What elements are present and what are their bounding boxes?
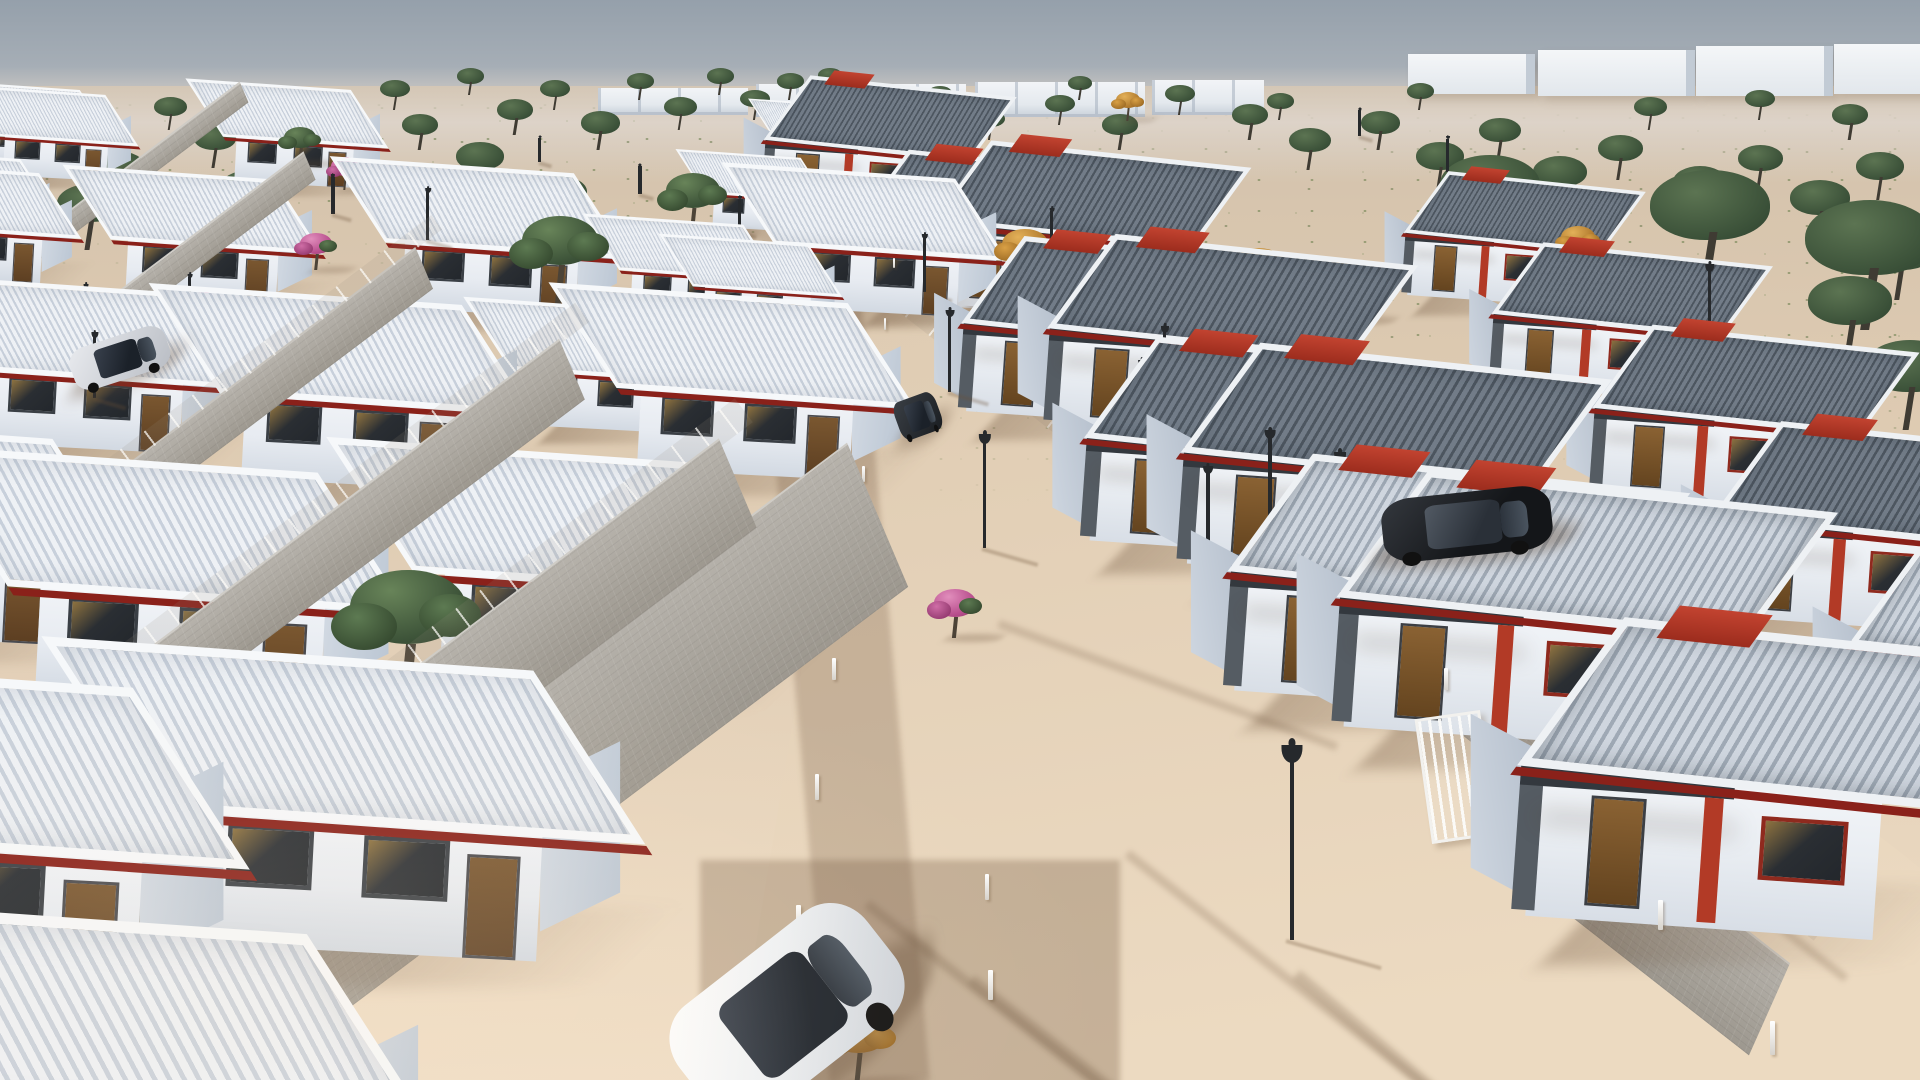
acacia-tree [402,114,438,150]
house-window [1757,816,1848,886]
lamp-finial [1288,738,1295,748]
distant-white-building [1696,46,1833,96]
acacia-tree [1479,118,1521,160]
distant-white-building [1834,44,1920,94]
red-parapet-box [1656,606,1772,648]
fence-post [985,874,989,900]
tree-trunk [718,82,722,95]
tree-canopy [1479,118,1521,142]
lamp-pole [538,138,542,162]
red-accent-pillar [1696,797,1724,923]
acacia-tree [1634,97,1667,130]
tree-canopy [319,240,337,252]
street-lamp [916,234,933,292]
acacia-tree [540,80,570,110]
street-lamp [968,434,1002,548]
red-parapet-box [1462,166,1510,183]
tree-canopy [331,603,397,650]
red-parapet-box [1284,334,1370,365]
house-right-block [1520,600,1920,934]
house-window [361,835,450,902]
house-door [1432,245,1458,292]
house-left-block [0,163,72,281]
tree-trunk [1758,106,1762,120]
tree-canopy [1856,152,1904,180]
tree-canopy [1289,128,1331,152]
lamp-pole [948,316,952,392]
bougainvillea-tree [933,587,977,638]
acacia-tree [497,99,533,135]
tree-canopy [698,185,727,205]
acacia-tree [1165,85,1195,115]
house-window [743,404,797,445]
fence-post [815,774,819,800]
tree-trunk [1647,114,1652,130]
lamp-finial [1268,427,1272,432]
tree-trunk [1307,150,1313,170]
street-lamp-small [1356,108,1364,136]
fence-post [1444,668,1448,690]
acacia-tree [1745,90,1775,120]
street-lamp-small [327,174,339,214]
acacia-tree [627,73,654,100]
lamp-finial [924,232,926,235]
tree-canopy [1130,97,1144,106]
fence-post [832,658,836,680]
street-lamp-small [636,164,645,194]
tree-canopy [1045,95,1075,112]
acacia-tree [1598,135,1643,180]
acacia-tree [457,68,484,95]
tree-trunk [417,133,422,150]
acacia-tree [1856,152,1904,200]
street-lamp [1263,745,1322,940]
acacia-tree [1267,93,1294,120]
house-window [0,235,7,260]
tree-canopy [380,80,410,97]
tree-canopy [1832,104,1868,125]
lamp-finial [1051,206,1053,208]
tree-canopy [1805,200,1920,275]
tree-trunk [1247,123,1252,140]
red-parapet-box [1008,134,1072,157]
tree-trunk [1058,111,1062,125]
lamp-finial [1206,463,1209,468]
acacia-tree [1289,128,1331,170]
tree-canopy [1232,104,1268,125]
house-door [12,242,34,282]
house-window [248,142,278,164]
lamp-finial [639,163,640,165]
acacia-tree [1832,104,1868,140]
tree-trunk [1278,107,1282,120]
tree-trunk [1178,101,1182,115]
house-door [462,853,521,959]
tree-canopy [657,189,688,211]
lamp-finial [189,272,191,274]
acacia-tree [380,80,410,110]
street-lamp-small [536,136,544,162]
lamp-pole [1358,110,1362,136]
lamp-pole [331,177,335,214]
tree-canopy [540,80,570,97]
tree-canopy [509,238,553,269]
corrugated-roof [0,85,139,147]
tree-trunk [212,148,218,168]
acacia-tree [1407,83,1434,110]
tree-canopy [497,99,533,120]
house-left-block [0,900,420,1080]
tree-trunk [1616,158,1623,180]
tree-trunk [677,114,682,130]
bougainvillea-tree [299,231,333,270]
tree-trunk [1418,97,1422,110]
architectural-rendering-scene [0,0,1920,1080]
tree-trunk [1377,131,1383,150]
red-parapet-box [824,70,874,88]
red-parapet-box [1671,318,1736,342]
tree-trunk [638,87,642,100]
house-door [1394,623,1448,721]
lamp-pole [983,442,987,548]
tree-trunk [468,82,472,95]
fence-post [988,970,993,1000]
tree-canopy [303,134,321,146]
lamp-bowl-head [91,332,98,338]
acacia-tree [1232,104,1268,140]
tree-trunk [597,131,603,150]
acacia-tree [664,97,697,130]
red-parapet-box [1558,237,1614,257]
lamp-finial [427,186,429,189]
red-accent-pillar [1478,246,1489,298]
fence-post [893,258,895,268]
acacia-tree [1361,111,1400,150]
tree-trunk [553,96,557,110]
lamp-bowl-head [1705,264,1715,272]
corrugated-roof [0,890,450,1080]
fence-post [1658,900,1663,930]
house-window [55,143,81,163]
lamp-bowl-head [1358,108,1361,111]
red-parapet-box [1802,414,1878,441]
tree-canopy [1745,90,1775,107]
fence-post [1770,1021,1775,1055]
acacia-tree [581,111,620,150]
tree-canopy [1165,85,1195,102]
tree-canopy [959,598,982,614]
tree-canopy [402,114,438,135]
lamp-bowl-head [1050,208,1055,212]
acacia-tree [1045,95,1075,125]
street-lamp [938,310,963,392]
tree-trunk [1847,123,1852,140]
tree-trunk [167,114,172,130]
house-door [1584,795,1647,909]
lamp-finial [949,307,952,311]
tree-canopy [1111,99,1125,109]
distant-white-building [1538,50,1695,96]
house-window [7,378,56,415]
car-windshield [1499,500,1530,538]
car-roof-glass [1424,499,1503,550]
tree-canopy [1650,170,1770,240]
lamp-finial [983,430,987,436]
tree-canopy [567,232,609,261]
lamp-pole [1290,759,1294,940]
red-parapet-box [1136,227,1210,254]
tree-canopy [927,601,951,618]
lamp-pole [638,166,642,194]
red-accent-pillar [1490,625,1514,733]
autumn-tree [1115,91,1141,121]
lamp-pole [923,238,927,292]
acacia-tree [707,68,734,95]
tree-trunk [393,96,397,110]
corrugated-roof [0,652,250,870]
tree-trunk [1078,88,1081,100]
tree-trunk [1876,177,1883,200]
tree-trunk [512,118,517,135]
